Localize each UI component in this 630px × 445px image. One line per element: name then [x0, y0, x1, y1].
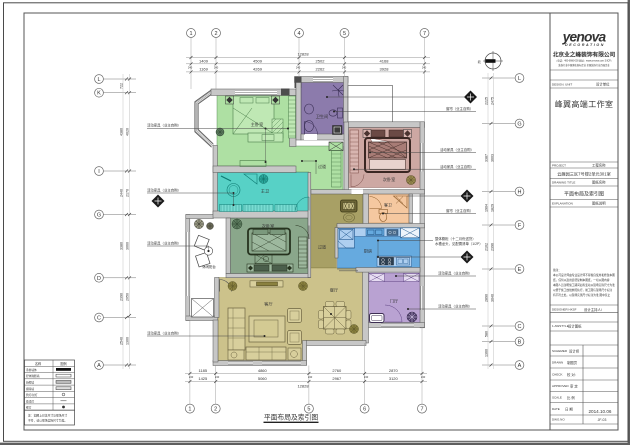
svg-text:活动家具（业主自购）: 活动家具（业主自购） — [440, 147, 474, 152]
svg-text:1.AWSTYLE: 1.AWSTYLE — [552, 324, 569, 328]
svg-text:过道: 过道 — [318, 244, 326, 250]
svg-text:名称: 名称 — [35, 361, 42, 366]
svg-text:新砌墙: 新砌墙 — [26, 381, 34, 385]
svg-text:1: 1 — [189, 31, 192, 37]
svg-text:DWG.NO: DWG.NO — [552, 418, 565, 422]
svg-text:5: 5 — [343, 31, 346, 37]
svg-text:活动家具（业主自购）: 活动家具（业主自购） — [147, 241, 181, 246]
svg-text:以便于施工放线参照执行，竣工图与现场尺寸标注: 以便于施工放线参照执行，竣工图与现场尺寸标注 — [553, 288, 612, 292]
svg-text:活动家具（业主自购）: 活动家具（业主自购） — [147, 188, 181, 193]
svg-text:4509: 4509 — [253, 58, 263, 63]
svg-text:注：如图上已注尺寸与现场尺寸: 注：如图上已注尺寸与现场尺寸 — [28, 414, 67, 418]
svg-text:设计单位: 设计单位 — [596, 82, 610, 87]
svg-text:工程名称: 工程名称 — [592, 163, 606, 168]
svg-text:本图人员注明施工期间如有变动以现场实际尺寸为准: 本图人员注明施工期间如有变动以现场实际尺寸为准 — [553, 283, 615, 287]
svg-text:主卧室: 主卧室 — [251, 121, 264, 128]
svg-text:3380: 3380 — [120, 242, 124, 250]
svg-text:1300: 1300 — [126, 337, 130, 345]
svg-text:DESIGN. UNIT: DESIGN. UNIT — [552, 83, 572, 87]
svg-text:E: E — [518, 267, 522, 273]
svg-text:2967: 2967 — [332, 376, 342, 381]
svg-text:4269: 4269 — [253, 66, 263, 71]
svg-text:2225: 2225 — [485, 97, 489, 105]
svg-text:2540: 2540 — [120, 337, 124, 345]
svg-text:1829: 1829 — [491, 204, 495, 212]
svg-text:餐厅: 餐厅 — [330, 287, 338, 294]
svg-text:2: 2 — [214, 31, 217, 37]
svg-text:4020: 4020 — [126, 128, 130, 136]
svg-text:1169: 1169 — [199, 66, 208, 71]
svg-text:5: 5 — [307, 407, 310, 413]
svg-text:L: L — [518, 76, 521, 82]
svg-text:JF-03: JF-03 — [598, 418, 607, 422]
svg-text:设计图纸: 设计图纸 — [568, 324, 582, 329]
svg-text:次卧室: 次卧室 — [262, 223, 275, 230]
svg-text:240: 240 — [342, 66, 347, 70]
svg-text:平面布局及索引图: 平面布局及索引图 — [264, 413, 319, 422]
svg-text:活动家具（业主自购）: 活动家具（业主自购） — [438, 304, 472, 309]
svg-text:4860: 4860 — [258, 368, 268, 373]
svg-text:2760: 2760 — [332, 368, 342, 373]
svg-text:DRAWING TITLE: DRAWING TITLE — [552, 181, 575, 185]
svg-text:2396: 2396 — [491, 243, 495, 251]
svg-text:设计主持人/: 设计主持人/ — [584, 307, 602, 312]
svg-text:K: K — [97, 91, 101, 97]
svg-text:2870: 2870 — [389, 368, 399, 373]
svg-text:240: 240 — [214, 66, 219, 70]
svg-text:不符，请以现场实际尺寸为准。: 不符，请以现场实际尺寸为准。 — [28, 419, 67, 423]
svg-text:1360: 1360 — [485, 349, 489, 357]
svg-text:轻体隔断墙: 轻体隔断墙 — [26, 374, 40, 378]
svg-text:1425: 1425 — [198, 376, 208, 381]
svg-text:审 定: 审 定 — [570, 384, 578, 389]
svg-text:D: D — [97, 276, 101, 282]
svg-text:1185: 1185 — [198, 368, 207, 373]
svg-text:2262: 2262 — [316, 66, 326, 71]
svg-text:EXPLANATION: EXPLANATION — [552, 202, 573, 206]
svg-text:12828: 12828 — [297, 384, 309, 389]
svg-text:3928: 3928 — [380, 66, 390, 71]
svg-text:3060: 3060 — [126, 242, 130, 250]
svg-text:客厅: 客厅 — [264, 301, 272, 308]
svg-text:580: 580 — [485, 331, 489, 337]
svg-text:SCALE: SCALE — [552, 396, 562, 400]
svg-text:窗帘（业主自购）: 窗帘（业主自购） — [446, 106, 473, 111]
svg-text:2890: 2890 — [485, 294, 489, 302]
svg-text:承重墙体: 承重墙体 — [26, 368, 37, 372]
svg-text:设计师: 设计师 — [569, 349, 580, 354]
svg-text:活动家具（业主自购）: 活动家具（业主自购） — [147, 123, 181, 128]
svg-text:有不符之处，以现场实测尺寸标注为准 图中禁止: 有不符之处，以现场实测尺寸标注为准 图中禁止 — [553, 293, 610, 297]
svg-text:240: 240 — [188, 66, 193, 70]
svg-text:240: 240 — [215, 375, 220, 379]
svg-text:4380: 4380 — [120, 128, 124, 136]
svg-text:活动家具（业主自购）: 活动家具（业主自购） — [440, 164, 474, 169]
svg-text:240: 240 — [189, 375, 194, 379]
svg-text:日 期: 日 期 — [565, 407, 573, 412]
svg-text:722: 722 — [120, 83, 124, 89]
svg-text:A: A — [97, 363, 101, 369]
svg-text:L: L — [97, 77, 100, 83]
svg-text:1: 1 — [188, 407, 191, 413]
svg-text:整体橱柜（十二月份送货）: 整体橱柜（十二月份送货） — [435, 236, 476, 241]
svg-text:2475: 2475 — [491, 97, 495, 105]
svg-text:240: 240 — [422, 66, 427, 70]
svg-text:1904: 1904 — [485, 204, 489, 212]
svg-text:7: 7 — [420, 407, 423, 413]
svg-text:壁灯: 壁灯 — [26, 406, 32, 410]
svg-text:240: 240 — [296, 66, 301, 70]
svg-text:2502: 2502 — [316, 58, 326, 63]
svg-text:DRAWN: DRAWN — [552, 361, 563, 365]
svg-text:2050: 2050 — [126, 293, 130, 301]
svg-text:240: 240 — [364, 375, 369, 379]
svg-text:240: 240 — [421, 375, 426, 379]
svg-text:2014.10.06: 2014.10.06 — [589, 409, 612, 414]
svg-text:图例: 图例 — [60, 361, 66, 366]
svg-text:6: 6 — [363, 407, 366, 413]
svg-text:窗帘（业主自购）: 窗帘（业主自购） — [446, 208, 473, 213]
svg-text:12828: 12828 — [297, 52, 309, 57]
svg-text:水槽龙头，见配置清单（1/2P）: 水槽龙头，见配置清单（1/2P） — [435, 241, 483, 246]
svg-text:G: G — [517, 122, 521, 128]
svg-text:5060: 5060 — [258, 376, 268, 381]
svg-text:图纸名称: 图纸名称 — [592, 180, 606, 185]
svg-text:3603: 3603 — [491, 154, 495, 162]
svg-text:4: 4 — [297, 31, 300, 37]
svg-text:4168: 4168 — [380, 58, 390, 63]
svg-text:筒灯/射灯: 筒灯/射灯 — [26, 393, 38, 397]
svg-text:比 例: 比 例 — [567, 395, 575, 400]
svg-text:图纸说明: 图纸说明 — [592, 201, 606, 206]
svg-text:主卫: 主卫 — [261, 188, 269, 194]
svg-text:2440: 2440 — [120, 189, 124, 197]
svg-text:制图员: 制图员 — [567, 360, 578, 365]
svg-text:活动家具（业主自购）: 活动家具（业主自购） — [438, 271, 472, 276]
svg-text:北京业之峰装饰有限公司: 北京业之峰装饰有限公司 — [553, 51, 616, 59]
svg-text:本公司设计师由专业设计师不得擅自使用和修改本图: 本公司设计师由专业设计师不得擅自使用和修改本图 — [553, 273, 615, 277]
svg-text:A: A — [518, 363, 522, 369]
svg-text:活动家具（业主自购）: 活动家具（业主自购） — [147, 331, 181, 336]
svg-text:峰翼高端工作室: 峰翼高端工作室 — [555, 99, 614, 109]
svg-text:卫生间: 卫生间 — [316, 113, 329, 120]
svg-text:C: C — [97, 316, 101, 322]
svg-text:过道: 过道 — [318, 163, 326, 169]
svg-text:拆除墙: 拆除墙 — [26, 387, 34, 391]
svg-text:DECORATION: DECORATION — [565, 43, 605, 47]
svg-text:G: G — [97, 213, 101, 219]
svg-text:3387: 3387 — [485, 154, 489, 162]
svg-text:3120: 3120 — [389, 376, 399, 381]
svg-text:2390: 2390 — [120, 293, 124, 301]
svg-text:C: C — [518, 324, 522, 330]
svg-text:1409: 1409 — [199, 58, 209, 63]
svg-text:2: 2 — [214, 407, 217, 413]
svg-text:CHECK: CHECK — [552, 373, 563, 377]
svg-text:DESIGNER HXSF: DESIGNER HXSF — [552, 308, 577, 312]
svg-text:APPROVED: APPROVED — [552, 384, 570, 388]
svg-text:2102: 2102 — [485, 243, 489, 251]
svg-text:门厅: 门厅 — [390, 298, 398, 305]
svg-text:吸顶灯: 吸顶灯 — [26, 399, 34, 403]
svg-text:平面布局及索引图: 平面布局及索引图 — [564, 191, 604, 198]
svg-text:纸，任何以盗用途径复制本图纸，一切以图内容: 纸，任何以盗用途径复制本图纸，一切以图内容 — [553, 278, 610, 282]
svg-text:240: 240 — [308, 375, 313, 379]
svg-text:B: B — [518, 340, 522, 346]
svg-text:次卧室: 次卧室 — [383, 176, 396, 183]
svg-text:客卫: 客卫 — [384, 202, 392, 208]
svg-text:备注：: 备注： — [553, 268, 561, 272]
svg-text:2170: 2170 — [126, 189, 130, 197]
svg-text:3040: 3040 — [491, 294, 495, 302]
svg-text:H: H — [518, 190, 522, 196]
svg-text:7: 7 — [423, 31, 426, 37]
svg-text:休闲阳台: 休闲阳台 — [202, 264, 216, 269]
svg-text:PROJECT: PROJECT — [552, 164, 566, 168]
svg-text:厨房: 厨房 — [364, 248, 372, 255]
svg-text:校 对:: 校 对: — [567, 372, 576, 377]
svg-text:云趣园三区7号楼2单元301室: 云趣园三区7号楼2单元301室 — [557, 171, 611, 178]
svg-text:SCHEMER: SCHEMER — [552, 349, 568, 353]
svg-text:DATE: DATE — [552, 407, 560, 411]
